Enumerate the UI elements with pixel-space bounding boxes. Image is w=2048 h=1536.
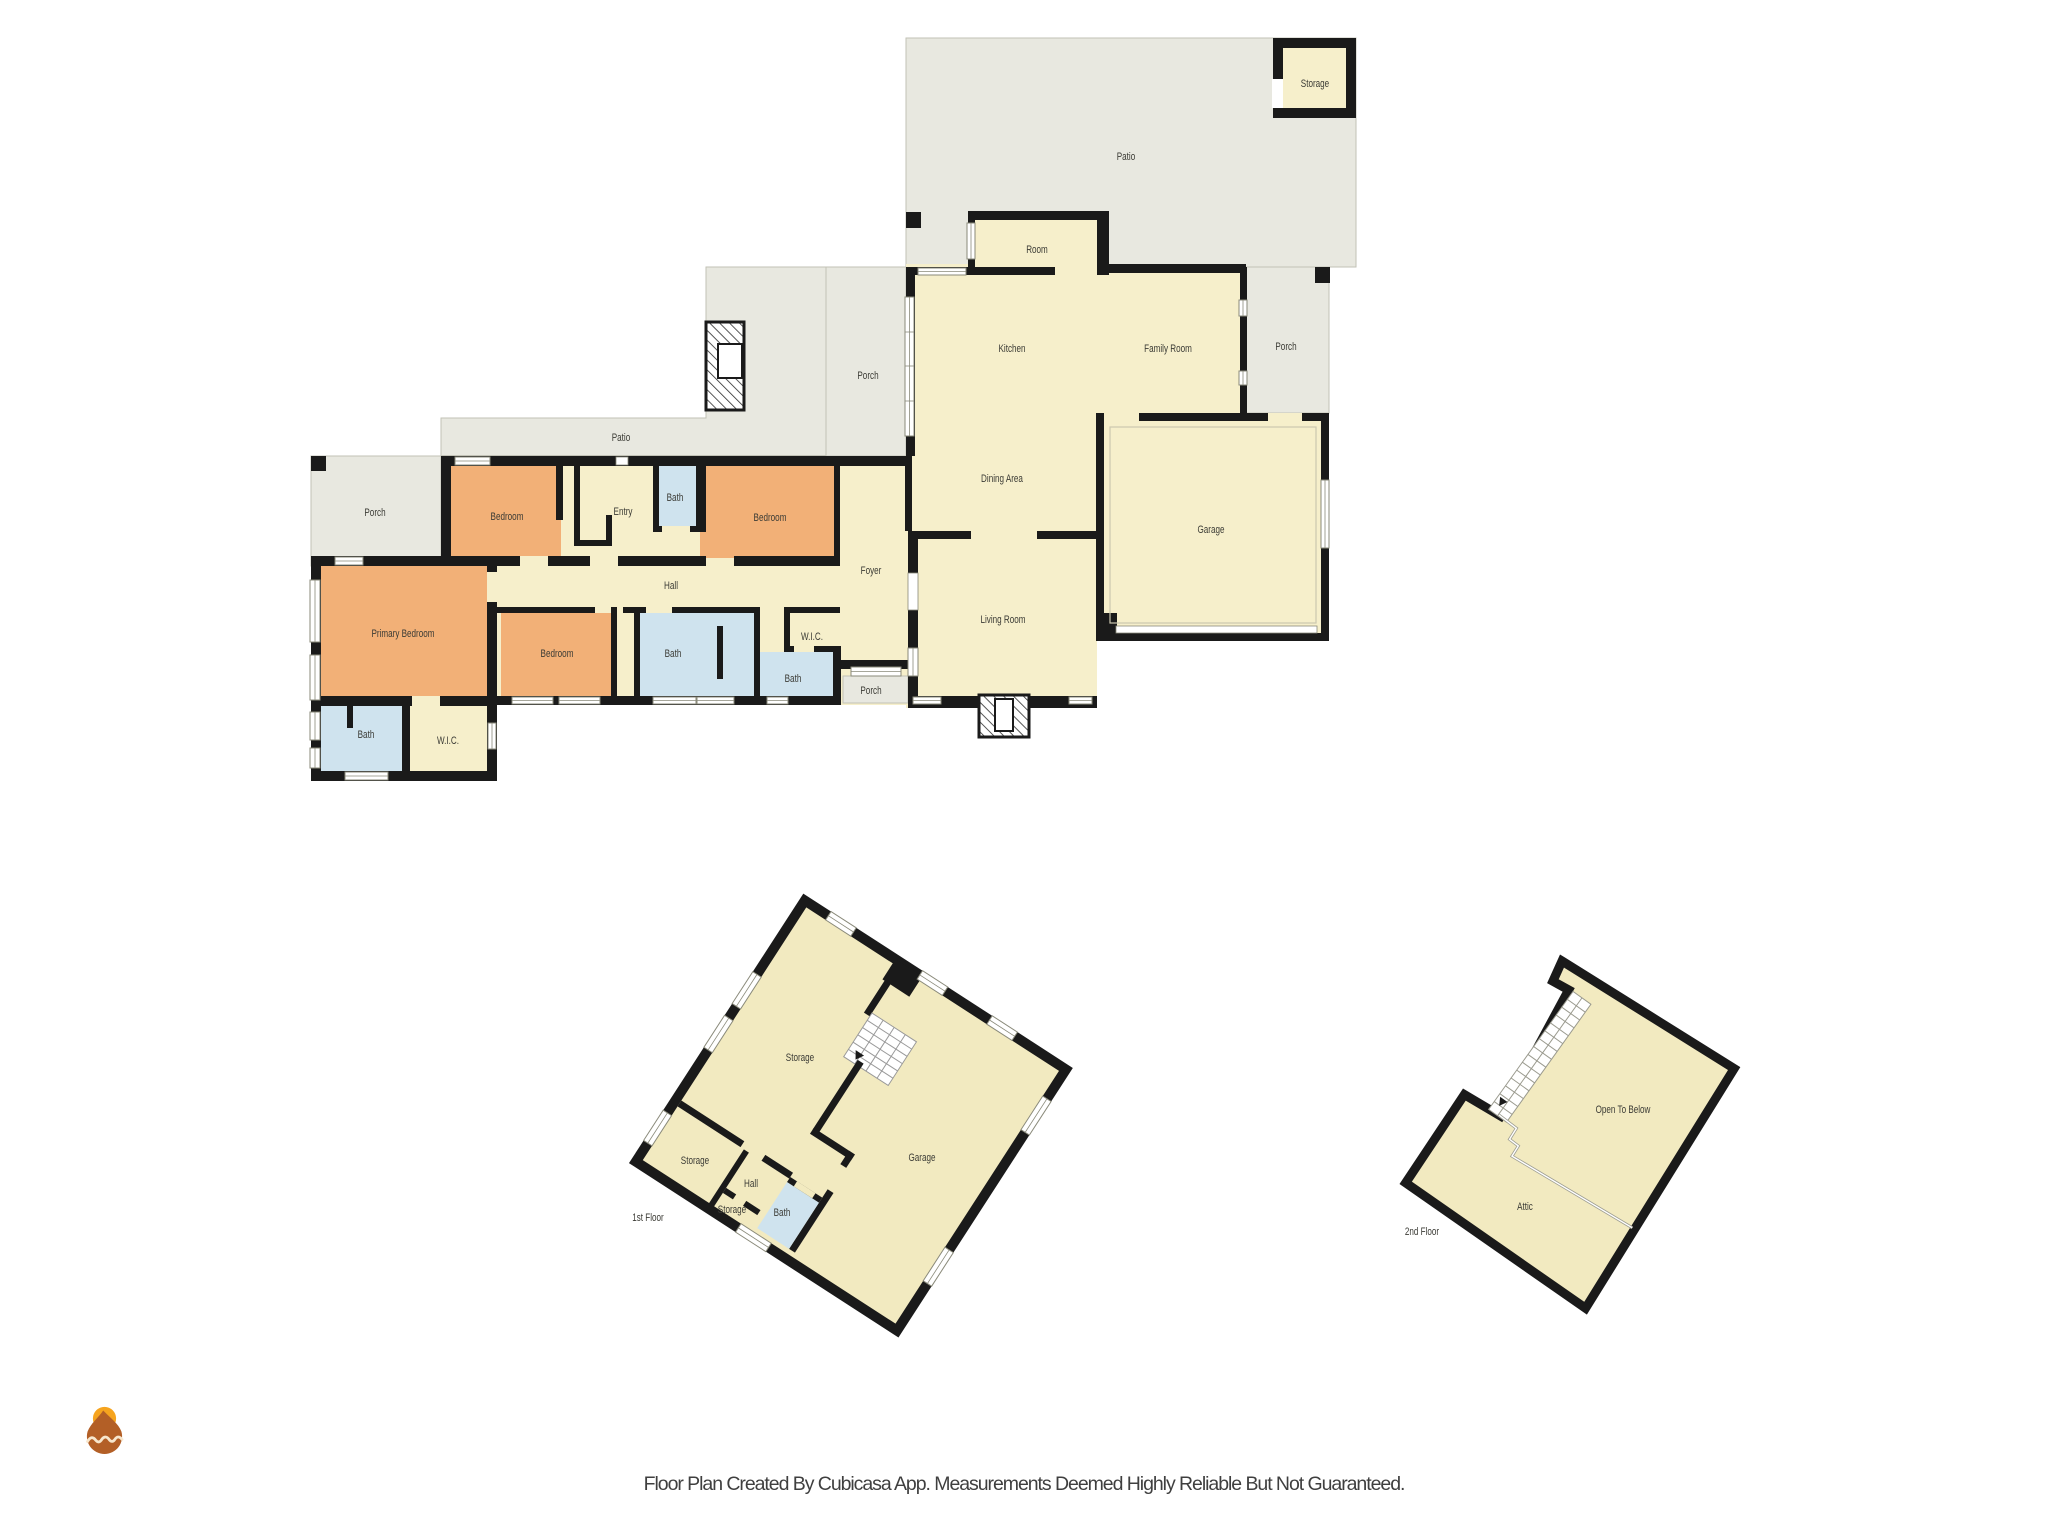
- svg-text:Kitchen: Kitchen: [999, 343, 1026, 355]
- svg-text:Porch: Porch: [364, 507, 385, 519]
- svg-text:Primary Bedroom: Primary Bedroom: [372, 628, 435, 640]
- svg-text:Patio: Patio: [612, 432, 631, 444]
- svg-text:Storage: Storage: [681, 1155, 709, 1167]
- svg-text:Hall: Hall: [744, 1178, 758, 1190]
- svg-text:Porch: Porch: [860, 685, 881, 697]
- svg-text:Porch: Porch: [857, 370, 878, 382]
- svg-text:Open To Below: Open To Below: [1596, 1104, 1651, 1116]
- svg-text:Room: Room: [1026, 244, 1048, 256]
- svg-text:Porch: Porch: [1275, 341, 1296, 353]
- svg-text:Bedroom: Bedroom: [754, 512, 787, 524]
- svg-text:Foyer: Foyer: [861, 565, 882, 577]
- svg-text:2nd Floor: 2nd Floor: [1405, 1226, 1439, 1238]
- svg-text:Bedroom: Bedroom: [491, 511, 524, 523]
- svg-text:Storage: Storage: [718, 1204, 746, 1216]
- svg-text:Bath: Bath: [774, 1207, 791, 1219]
- svg-text:Attic: Attic: [1517, 1201, 1533, 1213]
- svg-text:1st Floor: 1st Floor: [632, 1212, 664, 1224]
- svg-text:Floor Plan Created By Cubicasa: Floor Plan Created By Cubicasa App. Meas…: [644, 1473, 1405, 1495]
- svg-text:Bath: Bath: [785, 673, 802, 685]
- svg-text:W.I.C.: W.I.C.: [801, 631, 823, 643]
- svg-text:Bath: Bath: [667, 492, 684, 504]
- svg-text:W.I.C.: W.I.C.: [437, 735, 459, 747]
- svg-text:Garage: Garage: [1198, 524, 1225, 536]
- svg-text:Family Room: Family Room: [1144, 343, 1192, 355]
- svg-text:Bath: Bath: [358, 729, 375, 741]
- svg-text:Storage: Storage: [1301, 78, 1329, 90]
- svg-text:Dining Area: Dining Area: [981, 473, 1023, 485]
- svg-text:Entry: Entry: [614, 506, 633, 518]
- svg-text:Garage: Garage: [909, 1152, 936, 1164]
- svg-text:Bedroom: Bedroom: [541, 648, 574, 660]
- svg-text:Bath: Bath: [665, 648, 682, 660]
- svg-text:Hall: Hall: [664, 580, 678, 592]
- svg-text:Living Room: Living Room: [981, 614, 1026, 626]
- svg-text:Storage: Storage: [786, 1052, 814, 1064]
- svg-text:Patio: Patio: [1117, 151, 1136, 163]
